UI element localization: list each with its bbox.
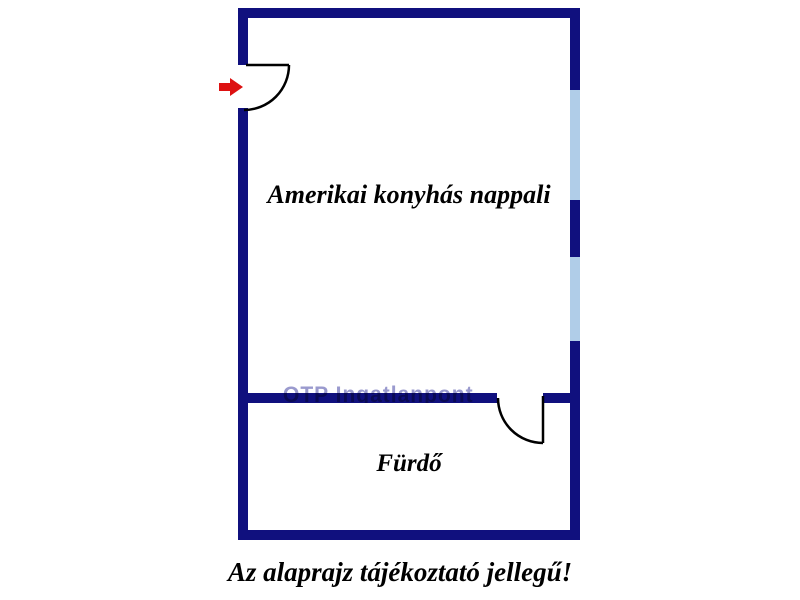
- floorplan-drawing: [0, 0, 800, 600]
- floorplan-caption: Az alaprajz tájékoztató jellegű!: [0, 556, 800, 588]
- bathroom-door-swing-arc: [498, 398, 543, 443]
- wall-top: [238, 8, 580, 18]
- window-lower: [570, 257, 580, 341]
- wall-bottom: [238, 530, 580, 540]
- wall-right-lower: [570, 341, 580, 540]
- watermark-text-shifted: OTP Ingatlanpont: [283, 393, 495, 403]
- entrance-arrow-icon: [219, 78, 243, 96]
- room-label-living: Amerikai konyhás nappali: [238, 180, 580, 210]
- room-label-bathroom: Fürdő: [238, 450, 580, 478]
- divider-wall-right: [543, 393, 580, 403]
- wall-right-upper: [570, 8, 580, 90]
- entrance-door-swing-arc: [244, 65, 289, 110]
- watermark-text-on-wall: OTP Ingatlanpont: [283, 393, 495, 403]
- floorplan-canvas: OTP Ingatlanpont OTP Ingatlanpont Amerik…: [0, 0, 800, 600]
- wall-left-above-entrance: [238, 8, 248, 65]
